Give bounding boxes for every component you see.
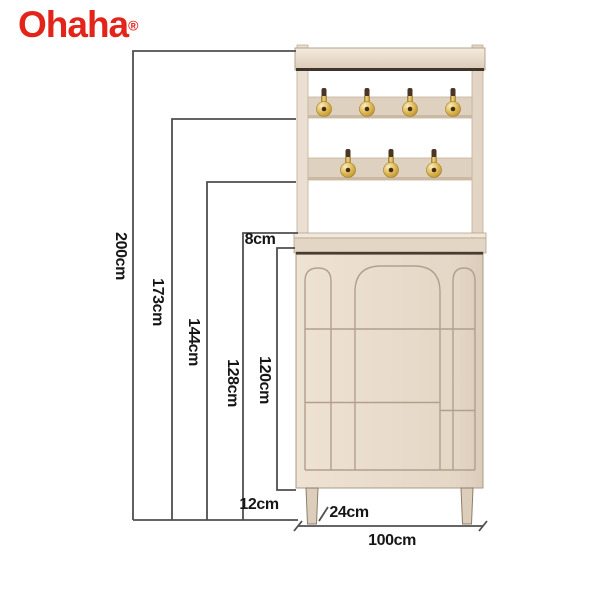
product-dimension-diagram: Ohaha® xyxy=(0,0,600,600)
cabinet-body xyxy=(296,252,483,524)
dim-label-cabinet-with-top-height: 128cm xyxy=(223,348,241,418)
cabinet-top-shelf xyxy=(294,233,486,253)
dim-label-upper-hook-rail-height: 173cm xyxy=(148,267,166,337)
dim-label-total-height: 200cm xyxy=(111,221,129,291)
right-leg xyxy=(461,488,473,524)
dim-label-lower-hook-rail-height: 144cm xyxy=(184,307,202,377)
dim-label-leg-height: 12cm xyxy=(237,496,281,514)
dim-label-top-shelf-thickness: 8cm xyxy=(238,231,282,249)
upper-hook-rail-shadow xyxy=(308,115,472,118)
top-board xyxy=(295,48,485,70)
cabinet-top-edge xyxy=(296,252,483,255)
left-post xyxy=(297,45,308,235)
dim-line-120cm xyxy=(277,248,296,490)
hook-panel-frame xyxy=(295,45,485,235)
top-board-edge xyxy=(296,68,484,71)
dim-label-cabinet-body-height: 120cm xyxy=(255,345,273,415)
right-post xyxy=(472,45,483,235)
dim-label-depth: 24cm xyxy=(322,504,376,522)
left-leg xyxy=(306,488,318,524)
dim-label-width: 100cm xyxy=(360,532,424,550)
furniture-illustration xyxy=(0,0,600,600)
